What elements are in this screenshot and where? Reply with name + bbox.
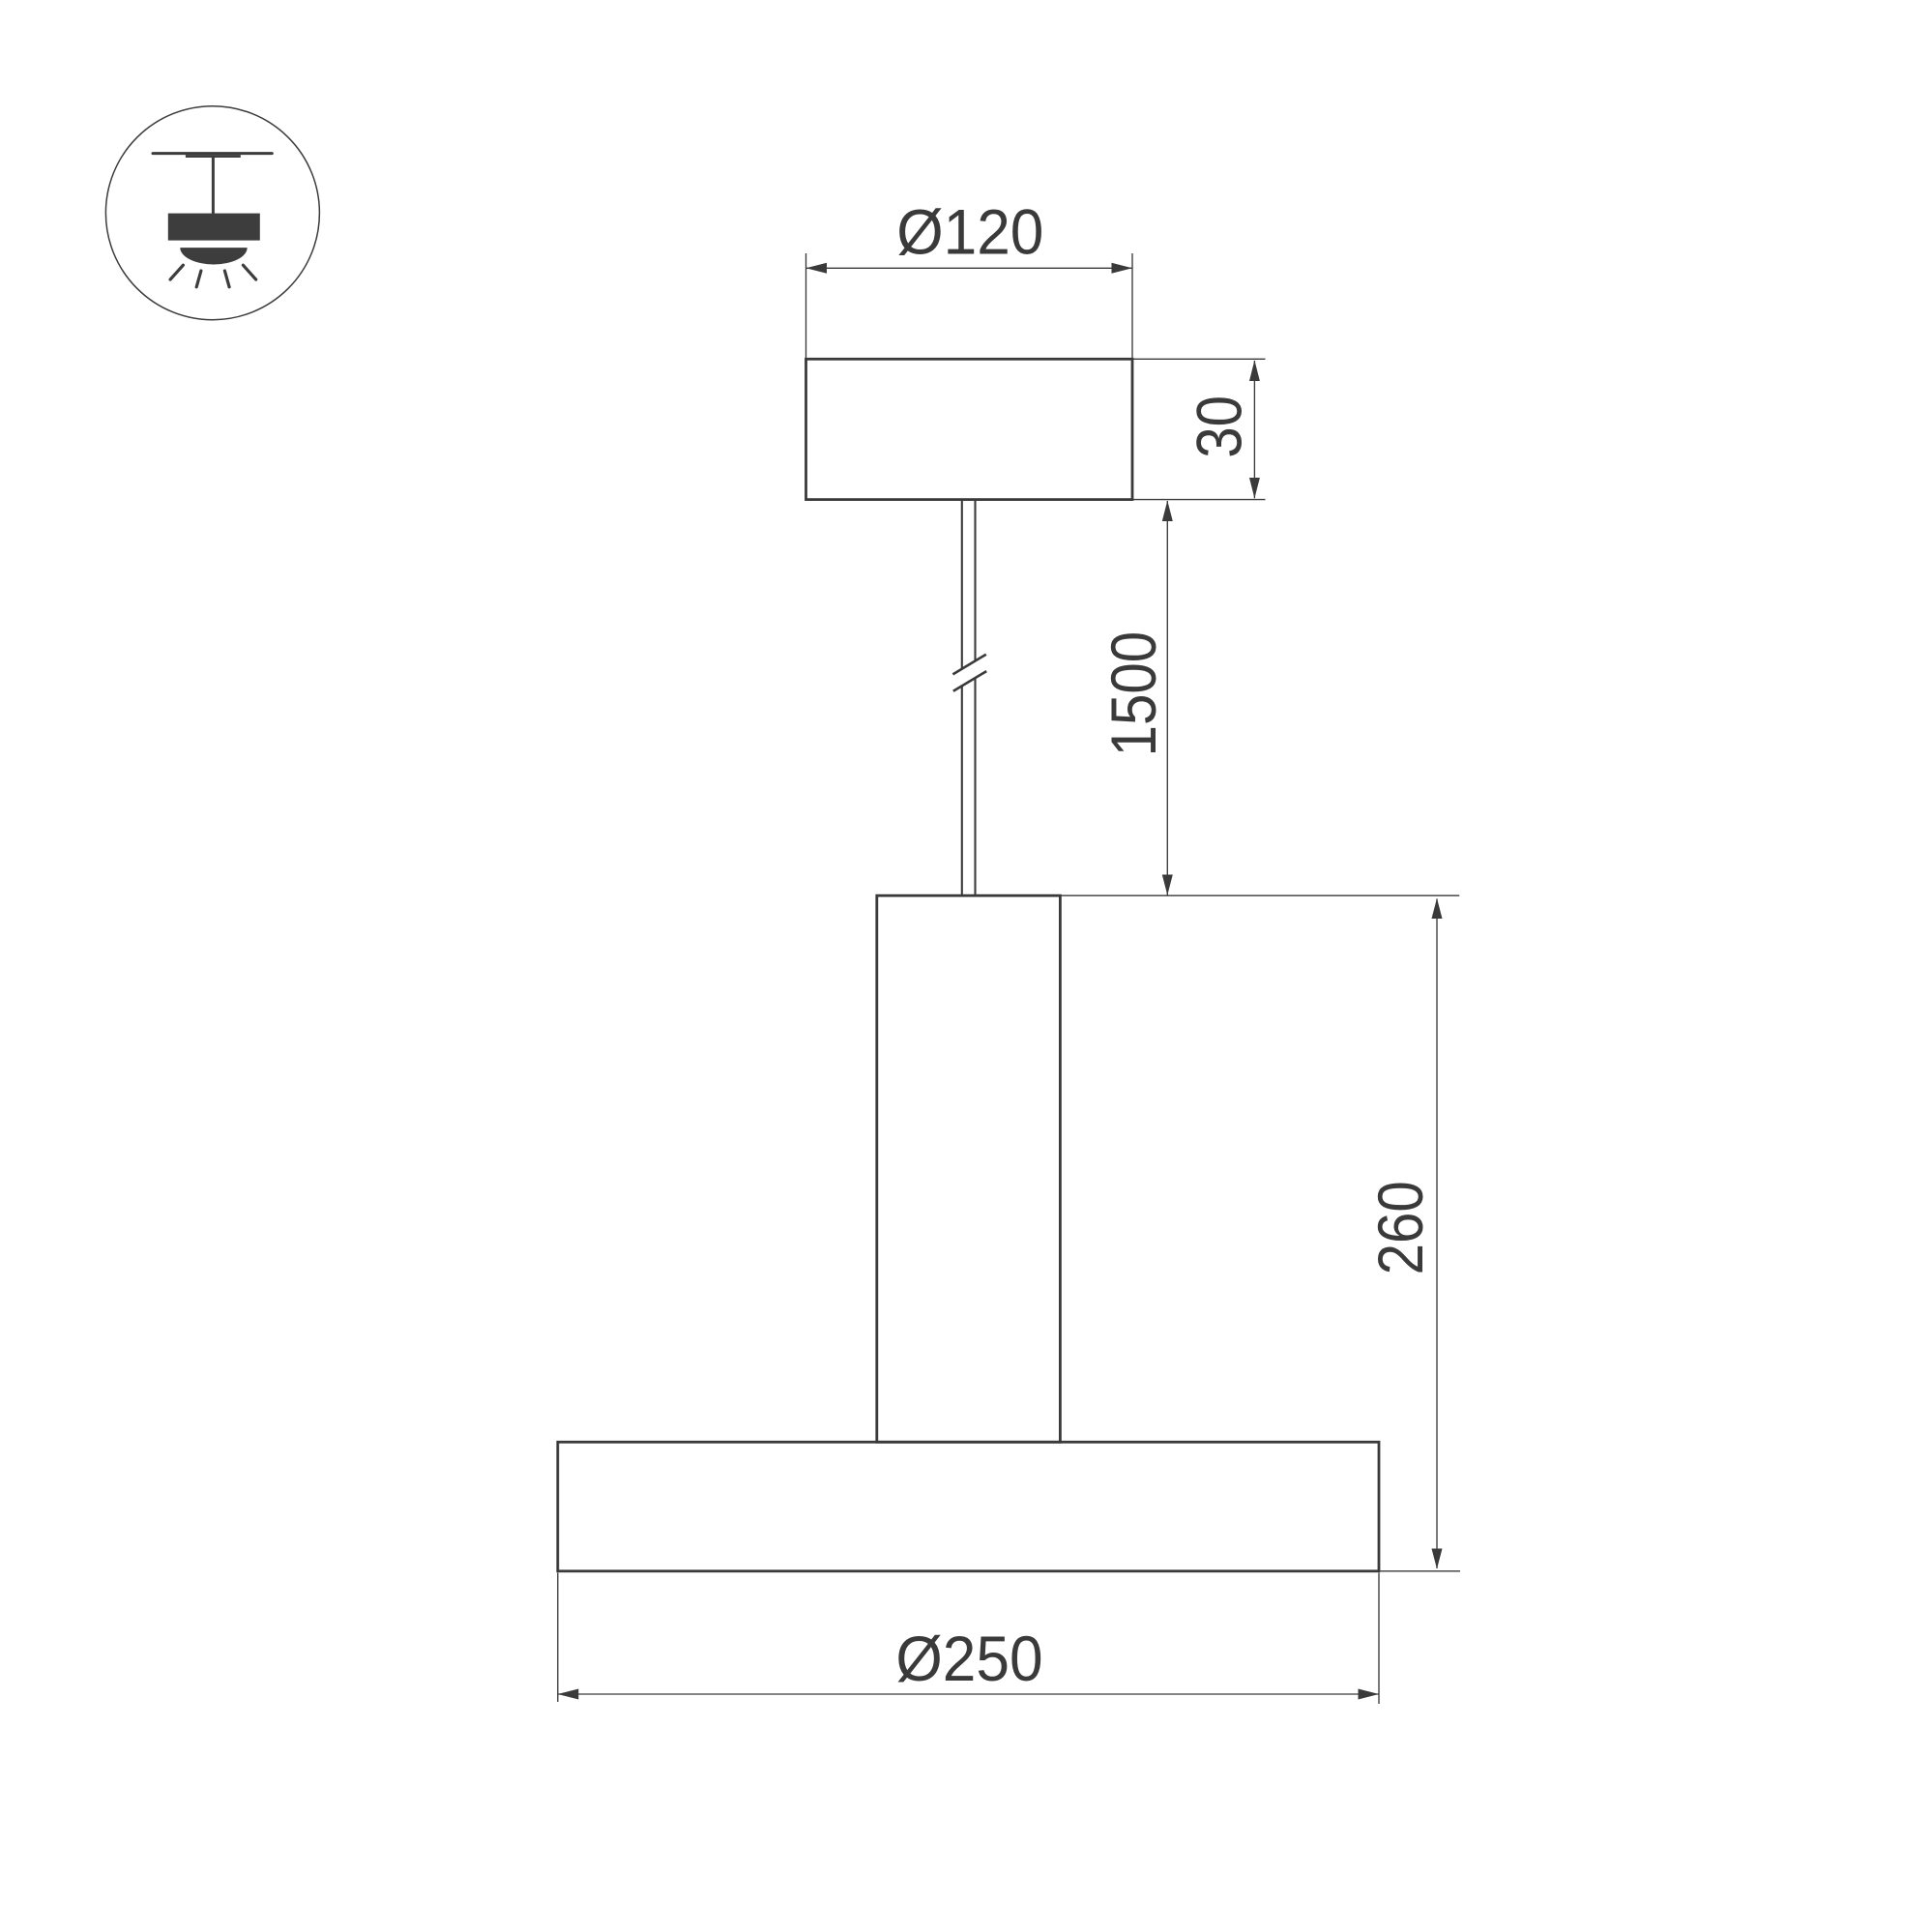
svg-text:260: 260 [1366, 1181, 1437, 1274]
svg-text:30: 30 [1185, 395, 1255, 458]
svg-text:Ø250: Ø250 [895, 1623, 1042, 1694]
svg-text:Ø120: Ø120 [896, 196, 1043, 268]
svg-text:1500: 1500 [1099, 631, 1170, 757]
